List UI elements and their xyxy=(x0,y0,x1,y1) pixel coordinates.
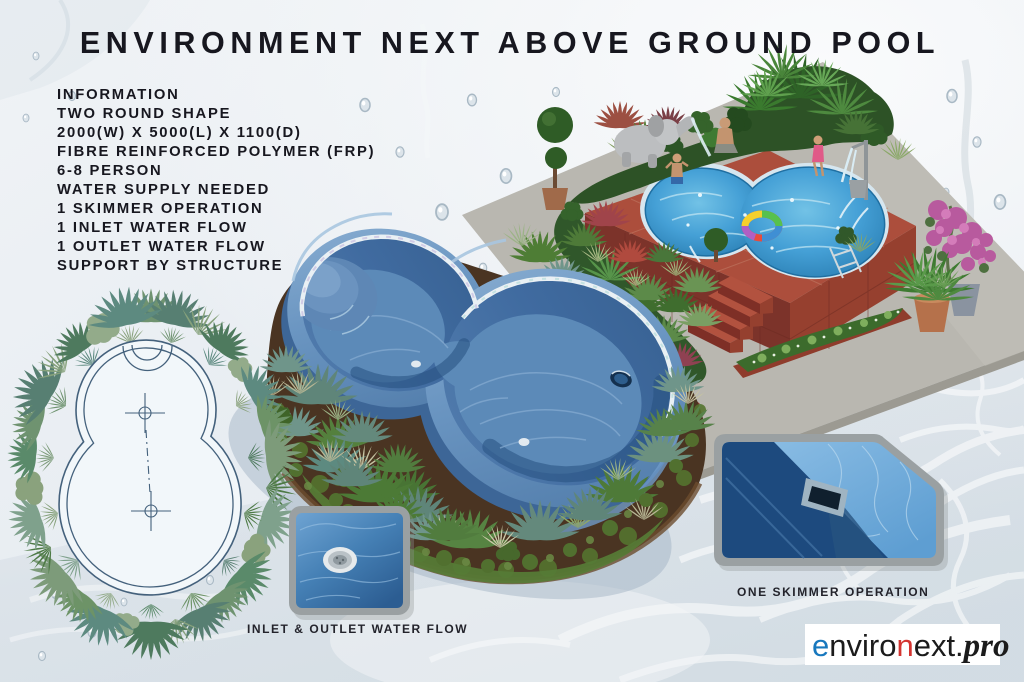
svg-text:SUPPORT BY STRUCTURE: SUPPORT BY STRUCTURE xyxy=(57,258,283,274)
svg-text:2000(W) X 5000(L) X 1100(D): 2000(W) X 5000(L) X 1100(D) xyxy=(57,125,302,141)
svg-text:6-8 PERSON: 6-8 PERSON xyxy=(57,163,163,179)
svg-text:1 SKIMMER OPERATION: 1 SKIMMER OPERATION xyxy=(57,201,263,217)
svg-text:1 OUTLET WATER FLOW: 1 OUTLET WATER FLOW xyxy=(57,239,266,255)
svg-text:ONE SKIMMER OPERATION: ONE SKIMMER OPERATION xyxy=(737,585,929,599)
svg-text:WATER SUPPLY NEEDED: WATER SUPPLY NEEDED xyxy=(57,182,270,198)
svg-text:FIBRE REINFORCED POLYMER (FRP): FIBRE REINFORCED POLYMER (FRP) xyxy=(57,144,375,160)
svg-text:INFORMATION: INFORMATION xyxy=(57,87,180,103)
svg-text:1 INLET WATER FLOW: 1 INLET WATER FLOW xyxy=(57,220,248,236)
svg-text:INLET & OUTLET WATER FLOW: INLET & OUTLET WATER FLOW xyxy=(247,622,468,636)
svg-text:environext.pro: environext.pro xyxy=(812,628,1010,664)
svg-text:TWO ROUND SHAPE: TWO ROUND SHAPE xyxy=(57,106,231,122)
svg-text:ENVIRONMENT NEXT ABOVE GROUND: ENVIRONMENT NEXT ABOVE GROUND POOL xyxy=(80,26,940,60)
